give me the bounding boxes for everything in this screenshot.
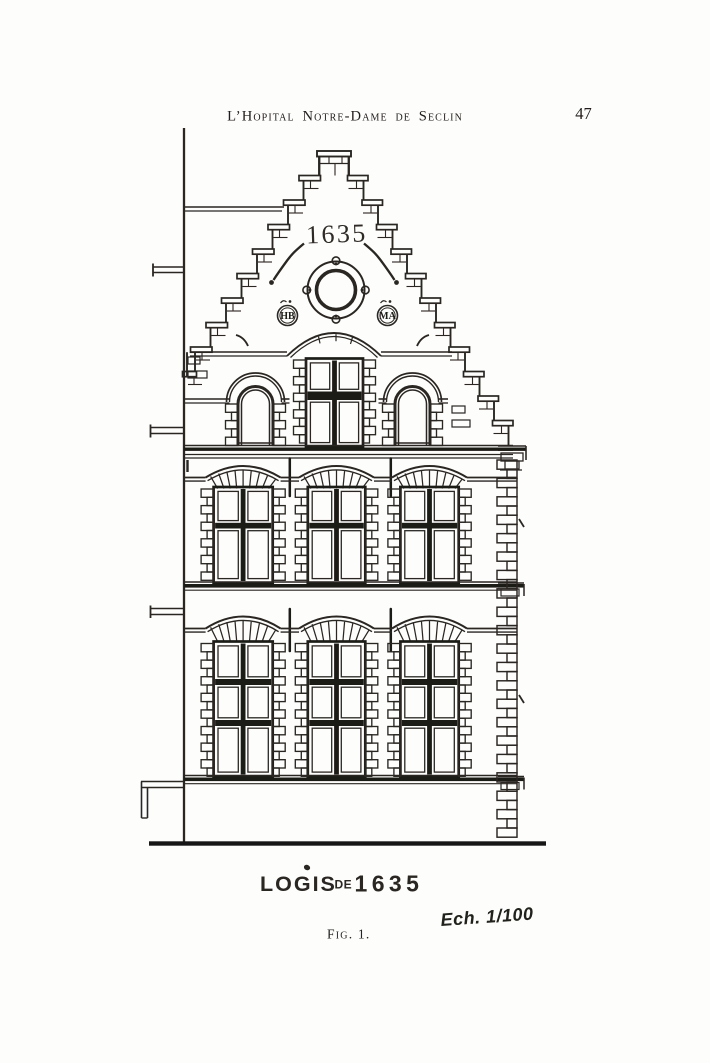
svg-text:Ech. 1/100: Ech. 1/100 [440, 904, 534, 930]
svg-text:1635: 1635 [306, 218, 369, 249]
svg-text:L’Hopital Notre-Dame de Seclin: L’Hopital Notre-Dame de Seclin [227, 109, 463, 125]
svg-text:Fig. 1.: Fig. 1. [327, 927, 371, 942]
svg-text:47: 47 [575, 104, 592, 123]
svg-text:MA: MA [379, 311, 396, 322]
svg-text:1635: 1635 [355, 871, 424, 897]
svg-text:LOGIS: LOGIS [260, 872, 337, 896]
svg-text:HB: HB [280, 311, 295, 322]
svg-text:DE: DE [335, 878, 353, 892]
